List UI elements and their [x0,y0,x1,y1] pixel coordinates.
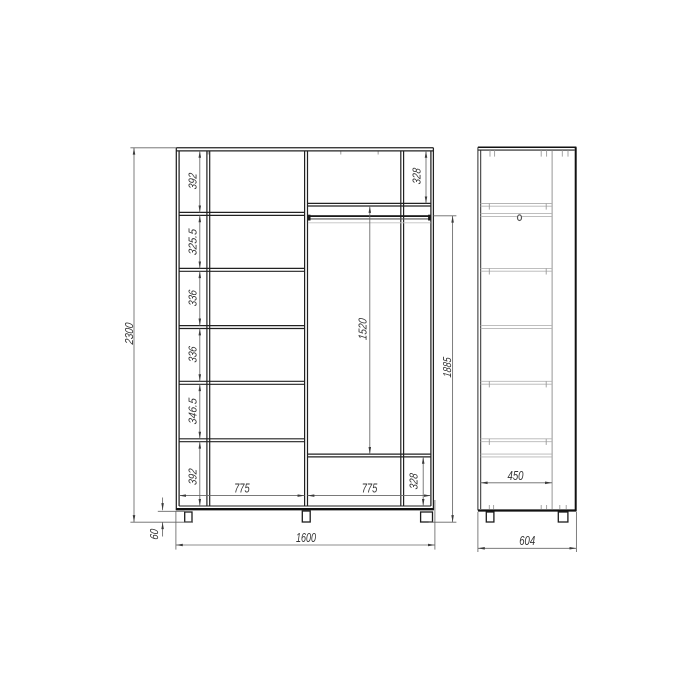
svg-text:325.5: 325.5 [188,228,200,256]
svg-text:336: 336 [188,289,200,307]
svg-text:392: 392 [188,467,200,485]
svg-text:1520: 1520 [358,317,370,341]
svg-text:392: 392 [188,172,200,190]
svg-text:450: 450 [508,469,524,483]
svg-text:328: 328 [408,472,420,490]
svg-text:1885: 1885 [442,356,454,378]
svg-text:775: 775 [234,482,250,496]
svg-text:336: 336 [188,345,200,363]
svg-text:775: 775 [362,482,378,496]
svg-text:328: 328 [411,167,423,185]
svg-text:604: 604 [519,533,535,548]
svg-text:1600: 1600 [296,530,317,545]
svg-text:2300: 2300 [124,322,136,346]
svg-text:346.5: 346.5 [188,397,200,425]
